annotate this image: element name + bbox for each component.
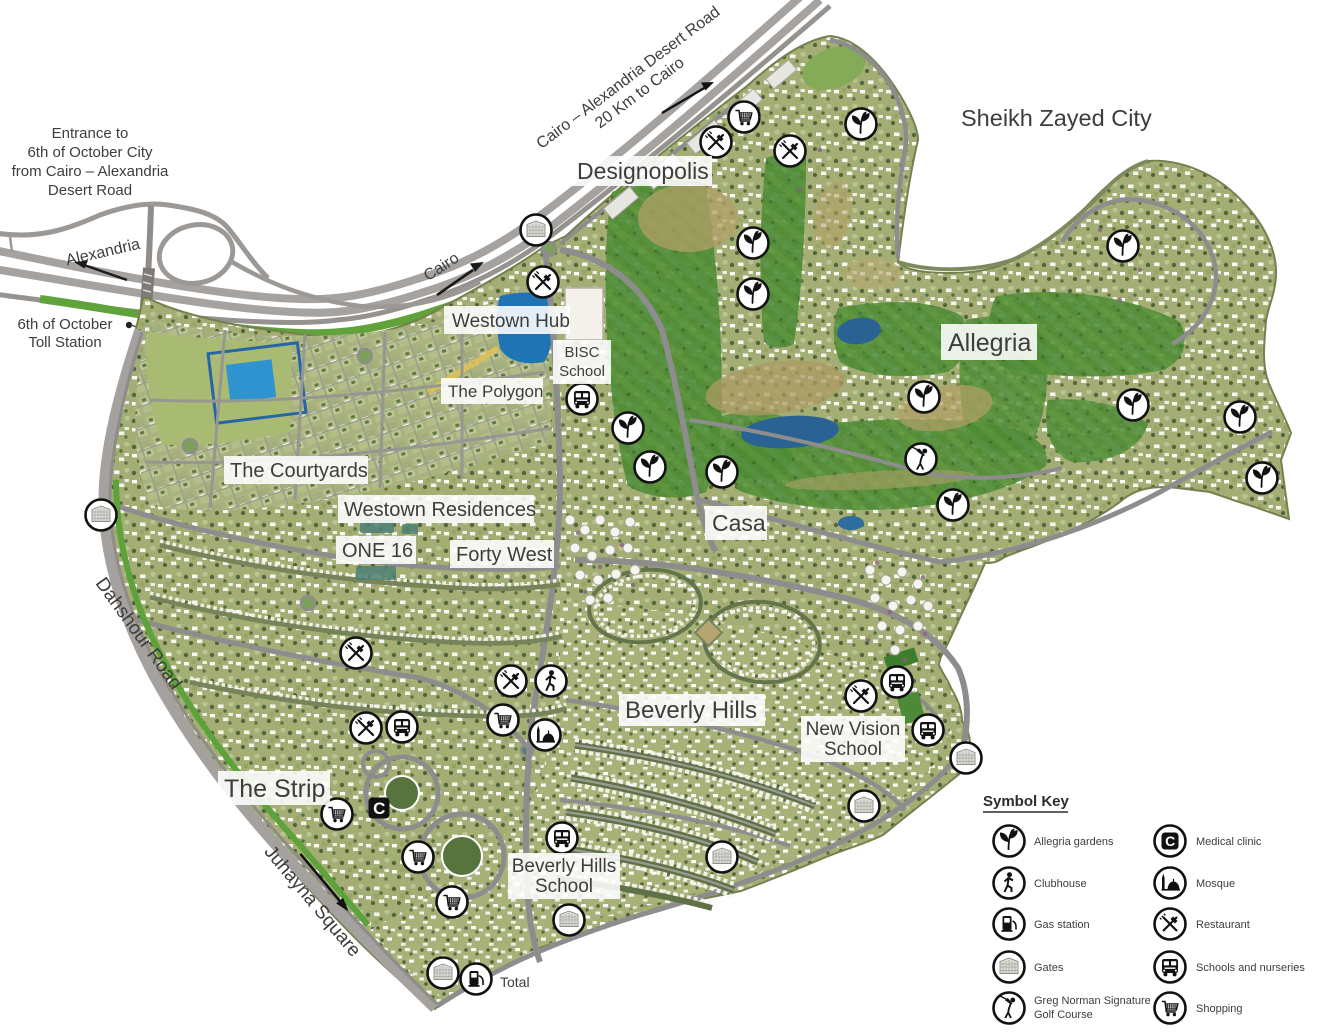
svg-text:Westown Hub: Westown Hub bbox=[452, 311, 570, 332]
svg-text:Designopolis: Designopolis bbox=[577, 158, 709, 184]
svg-text:Desert Road: Desert Road bbox=[48, 182, 132, 199]
svg-text:School: School bbox=[535, 876, 593, 897]
svg-text:Toll Station: Toll Station bbox=[28, 334, 101, 351]
svg-text:Symbol Key: Symbol Key bbox=[983, 793, 1070, 810]
svg-text:Casa: Casa bbox=[712, 510, 766, 536]
svg-text:Schools and nurseries: Schools and nurseries bbox=[1196, 962, 1305, 974]
svg-text:ONE 16: ONE 16 bbox=[342, 540, 413, 562]
svg-text:Forty West: Forty West bbox=[456, 544, 553, 566]
svg-text:School: School bbox=[559, 363, 605, 380]
svg-text:BISC: BISC bbox=[564, 344, 599, 361]
svg-text:The Strip: The Strip bbox=[224, 775, 325, 803]
svg-text:Restaurant: Restaurant bbox=[1196, 919, 1250, 931]
svg-text:Allegria: Allegria bbox=[948, 329, 1031, 357]
svg-text:Shopping: Shopping bbox=[1196, 1003, 1243, 1015]
svg-text:Greg Norman Signature: Greg Norman Signature bbox=[1034, 995, 1151, 1007]
svg-text:6th of October City: 6th of October City bbox=[27, 144, 153, 161]
svg-text:Clubhouse: Clubhouse bbox=[1034, 878, 1087, 890]
svg-text:C: C bbox=[373, 799, 385, 818]
svg-text:Gas station: Gas station bbox=[1034, 919, 1090, 931]
svg-text:Medical clinic: Medical clinic bbox=[1196, 836, 1262, 848]
svg-text:Westown Residences: Westown Residences bbox=[344, 499, 536, 521]
svg-text:6th of October: 6th of October bbox=[17, 316, 112, 333]
svg-text:The Polygon: The Polygon bbox=[448, 382, 543, 401]
svg-text:Beverly Hills: Beverly Hills bbox=[512, 856, 617, 877]
svg-text:The Courtyards: The Courtyards bbox=[230, 460, 368, 482]
svg-text:School: School bbox=[824, 739, 882, 760]
svg-text:Beverly Hills: Beverly Hills bbox=[625, 697, 757, 724]
svg-text:Golf Course: Golf Course bbox=[1034, 1009, 1093, 1021]
svg-text:Mosque: Mosque bbox=[1196, 878, 1235, 890]
svg-text:Total: Total bbox=[500, 974, 530, 990]
svg-text:Sheikh Zayed City: Sheikh Zayed City bbox=[961, 105, 1152, 131]
svg-text:from Cairo – Alexandria: from Cairo – Alexandria bbox=[12, 163, 169, 180]
svg-text:Entrance to: Entrance to bbox=[52, 125, 129, 142]
svg-text:Allegria gardens: Allegria gardens bbox=[1034, 836, 1114, 848]
svg-text:New Vision: New Vision bbox=[806, 719, 901, 740]
svg-text:Gates: Gates bbox=[1034, 962, 1064, 974]
